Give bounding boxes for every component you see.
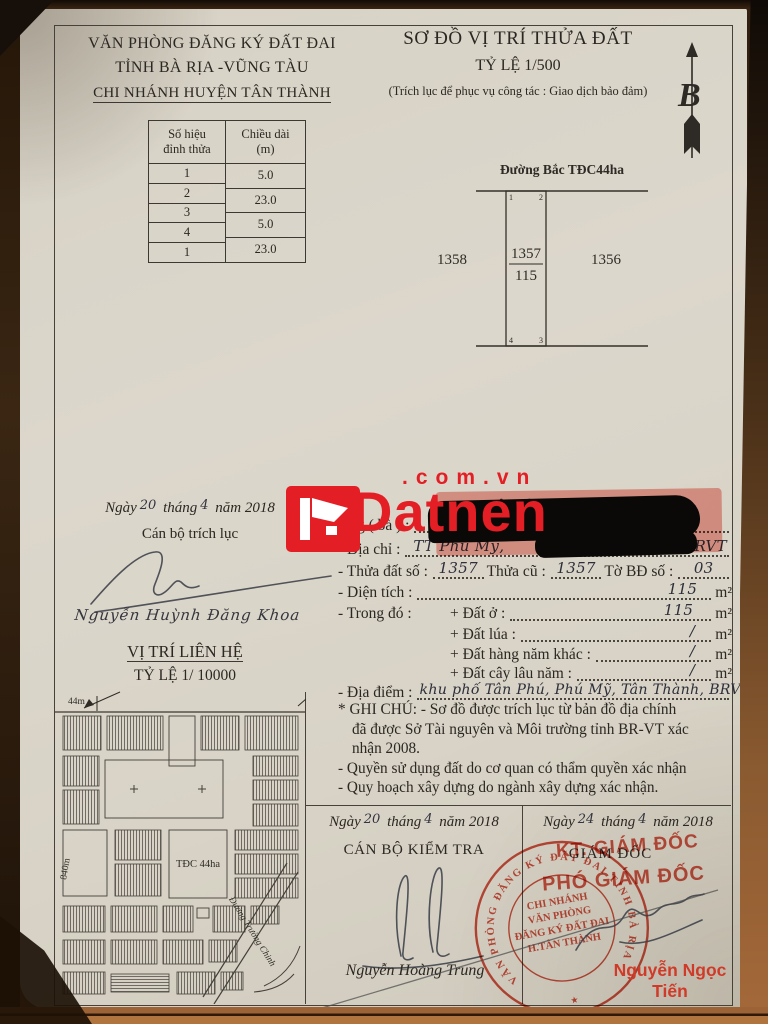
notes-block: * GHI CHÚ: - Sơ đồ được trích lục từ bản… [338,700,732,798]
issuing-office: VĂN PHÒNG ĐĂNG KÝ ĐẤT ĐAI TỈNH BÀ RỊA -V… [60,32,364,105]
table-row: 1 [149,163,225,183]
table-row: 1 [149,242,225,262]
page-title: SƠ ĐỒ VỊ TRÍ THỬA ĐẤT [368,28,668,50]
scanned-land-document-photo: VĂN PHÒNG ĐĂNG KÝ ĐẤT ĐAI TỈNH BÀ RỊA -V… [0,0,768,1024]
field-land-residential: - Trong đó : + Đất ở : 115 m² [338,604,732,623]
corner-2: 2 [539,193,543,202]
field-area: - Diện tích : 115 m² [338,583,732,602]
pen-stroke [310,878,730,1018]
col-header-vertex: Số hiệu [149,127,225,142]
map-area-label: TĐC 44ha [176,859,220,870]
datnen-logo-icon [286,486,360,552]
handwritten-day: 20 [140,498,157,513]
table-row: 2 [149,183,225,203]
road-label: Đường Bắc TĐC44ha [500,162,624,177]
map-left-dimension: 840m [59,857,73,881]
check-date-line: Ngày20 tháng4 năm 2018 [310,814,518,831]
table-row: 23.0 [226,237,305,262]
handwritten-area: 115 [668,580,698,598]
parcel-sketch: Đường Bắc TĐC44ha 1 2 3 4 1357 115 1358 … [420,160,680,360]
location-map: 44m 840m [54,690,306,1004]
north-arrow-icon: B [672,40,712,165]
handwritten-place: khu phố Tân Phú, Phú Mỹ, Tân Thành, BRVT [419,682,750,698]
north-label: B [677,77,701,114]
document-title-block: SƠ ĐỒ VỊ TRÍ THỬA ĐẤT TỶ LỆ 1/500 (Trích… [368,28,668,99]
signature-row-divider [305,805,731,806]
extract-date-line: Ngày20 tháng4 năm 2018 [70,500,310,517]
right-neighbor: 1356 [591,252,622,268]
redaction-bar [535,531,698,558]
corner-1: 1 [509,193,513,202]
field-land-rice: + Đất lúa : / m² [338,625,732,644]
table-row: 5.0 [226,163,305,188]
field-land-annual: + Đất hàng năm khác : / m² [338,645,732,664]
watermark-brand: Datnen [352,484,548,540]
location-map-title: VỊ TRÍ LIÊN HỆ [75,642,295,662]
table-edge-top [0,0,768,9]
parcel-number: 1357 [511,246,542,262]
location-map-scale: TỶ LỆ 1/ 10000 [75,667,295,685]
table-row: 4 [149,222,225,242]
table-row: 3 [149,203,225,223]
field-parcel-numbers: - Thửa đất số : 1357 Thửa cũ : 1357 Tờ B… [338,562,732,581]
handwritten-sheet: 03 [678,559,729,577]
watermark-domain: .com.vn [402,466,537,490]
purpose-note: (Trích lục để phục vụ công tác : Giao dị… [368,84,668,99]
col-header-length: Chiều dài [226,127,305,142]
extract-officer-name: Nguyễn Huỳnh Đăng Khoa [54,606,321,624]
office-line-3: CHI NHÁNH HUYỆN TÂN THÀNH [93,85,331,103]
corner-4: 4 [509,336,513,345]
map-scale: TỶ LỆ 1/500 [368,57,668,75]
left-neighbor: 1358 [437,252,467,268]
handwritten-parcel: 1357 [433,559,484,577]
corner-3: 3 [539,336,543,345]
office-line-1: VĂN PHÒNG ĐĂNG KÝ ĐẤT ĐAI [60,32,364,56]
parcel-area: 115 [515,268,537,284]
vertex-length-table: Số hiệu đỉnh thửa 1 2 3 4 1 Chiều dài (m… [148,120,306,263]
handwritten-old-parcel: 1357 [551,559,602,577]
table-row: 23.0 [226,188,305,213]
map-top-dimension: 44m [68,697,86,707]
field-land-perennial: + Đất cây lâu năm : / m² [338,664,732,683]
table-row: 5.0 [226,212,305,237]
handwritten-month: 4 [200,498,208,513]
office-line-2: TỈNH BÀ RỊA -VŨNG TÀU [60,56,364,80]
table-edge-left [0,0,20,1024]
table-edge-bottom [0,1007,768,1024]
